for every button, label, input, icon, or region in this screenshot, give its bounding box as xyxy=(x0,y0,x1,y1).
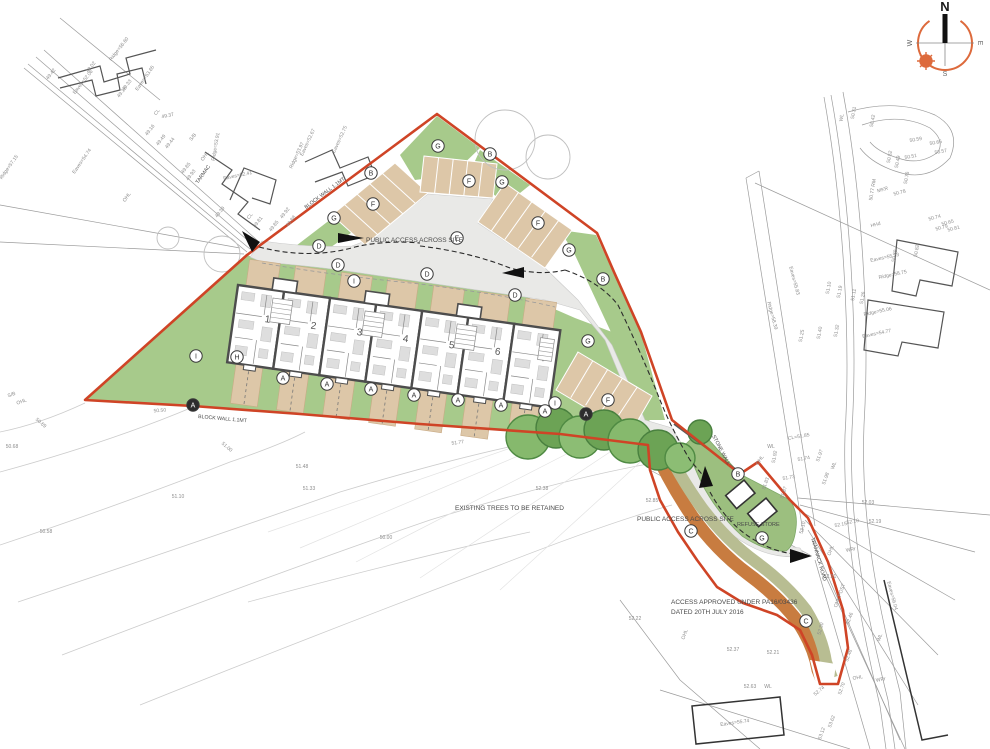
marker-A: A xyxy=(277,372,289,384)
survey-label: Eaves=54.74 xyxy=(71,148,93,176)
stair-core xyxy=(538,338,555,362)
survey-label: 50.42 xyxy=(869,114,877,128)
marker-A: A xyxy=(495,399,507,411)
front-step xyxy=(474,397,487,404)
survey-label: HHd xyxy=(870,221,881,229)
survey-label: WRr xyxy=(845,546,856,554)
survey-label: 51.98 xyxy=(821,472,831,486)
survey-label: 50.57 xyxy=(934,148,948,156)
annotation-public-access-top: PUBLIC ACCESS ACROSS SITE xyxy=(366,237,463,244)
survey-label: 51.92 xyxy=(771,450,779,464)
marker-letter: C xyxy=(688,529,693,536)
tree-shadow-lines xyxy=(268,440,648,590)
furniture xyxy=(442,374,452,384)
marker-letter: D xyxy=(512,293,517,300)
survey-label: 50.74 xyxy=(928,213,942,222)
furniture xyxy=(284,326,300,336)
survey-label: 53.12 xyxy=(817,727,827,741)
furniture xyxy=(353,340,365,355)
furniture xyxy=(307,333,319,348)
front-step xyxy=(243,365,256,372)
survey-label: 50.51 xyxy=(904,153,918,161)
survey-label: 51.77 xyxy=(451,439,464,447)
survey-label: 51.48 xyxy=(296,464,309,470)
furniture xyxy=(537,366,549,381)
marker-D: D xyxy=(332,259,344,271)
marker-letter: A xyxy=(412,393,417,400)
front-step xyxy=(520,403,533,410)
survey-label: Eaves=55.83 xyxy=(787,266,800,296)
survey-label: 50.66 xyxy=(929,139,943,147)
survey-label: 51.25 xyxy=(798,329,806,343)
marker-letter: I xyxy=(195,354,197,361)
marker-C: C xyxy=(685,525,697,537)
marker-letter: G xyxy=(759,536,764,543)
survey-label: 51.10 xyxy=(172,494,185,500)
marker-letter: G xyxy=(435,144,440,151)
marker-B: B xyxy=(732,468,744,480)
furniture xyxy=(258,349,268,359)
furniture xyxy=(465,378,478,389)
marker-letter: A xyxy=(499,403,504,410)
survey-label: 50.49 xyxy=(894,155,902,169)
marker-B: B xyxy=(484,148,496,160)
furniture xyxy=(419,371,432,382)
survey-label: 50.82 xyxy=(913,244,921,258)
survey-label: OHL xyxy=(122,191,133,203)
survey-label: OHL xyxy=(826,545,835,557)
survey-label: OHL xyxy=(200,150,211,162)
annotation-block-wall-nw: BLOCK WALL 1.1MT xyxy=(304,176,347,211)
marker-letter: I xyxy=(353,279,355,286)
marker-letter: D xyxy=(424,272,429,279)
furniture xyxy=(304,355,314,365)
annotation-access-approved-2: DATED 20TH JULY 2016 xyxy=(671,609,744,616)
marker-A: A xyxy=(321,378,333,390)
furniture xyxy=(396,368,406,378)
rear-porch xyxy=(456,304,481,319)
annotation-access-approved-1: ACCESS APPROVED UNDER PA16/03436 xyxy=(671,599,798,606)
furniture xyxy=(491,359,503,374)
marker-B: B xyxy=(365,167,377,179)
marker-letter: F xyxy=(536,221,540,228)
survey-label: Eaves=54.77 xyxy=(862,328,892,340)
survey-label: 49.37 xyxy=(161,112,175,121)
survey-label: OHL xyxy=(852,674,863,682)
annotation-existing-trees: EXISTING TREES TO BE RETAINED xyxy=(455,505,564,512)
furniture xyxy=(350,362,360,372)
survey-label: 50.81 xyxy=(947,224,961,233)
survey-label: 49.81 xyxy=(252,215,265,229)
survey-label: 50.68 xyxy=(6,444,19,450)
compass-east-label: E xyxy=(976,41,983,46)
marker-I: I xyxy=(348,275,360,287)
survey-label: Eaves=52.41 xyxy=(223,170,253,182)
marker-H: H xyxy=(231,351,243,363)
furniture xyxy=(511,384,524,395)
survey-label: 50.78 xyxy=(893,188,907,197)
survey-label: 51.11 xyxy=(850,288,858,301)
survey-label: 52.03 xyxy=(862,500,875,506)
marker-G: G xyxy=(582,335,594,347)
furniture xyxy=(422,345,438,355)
survey-label: 51.19 xyxy=(836,285,844,299)
marker-A: A xyxy=(408,389,420,401)
survey-label: 51.40 xyxy=(816,326,824,340)
survey-label: 53.10 xyxy=(799,521,808,535)
survey-label: 52.63 xyxy=(744,684,757,690)
survey-label: WL xyxy=(767,444,775,450)
rear-porch xyxy=(364,291,389,306)
survey-label: 52.38 xyxy=(536,486,549,492)
survey-label: 50.76 xyxy=(903,171,911,185)
site-plan-drawing: 1234567 xyxy=(0,0,990,749)
furniture xyxy=(488,381,498,391)
marker-letter: A xyxy=(325,382,330,389)
survey-label: S/B xyxy=(188,132,198,143)
marker-letter: D xyxy=(335,263,340,270)
marker-letter: G xyxy=(566,248,571,255)
marker-I: I xyxy=(190,350,202,362)
marker-A: A xyxy=(187,399,199,411)
marker-F: F xyxy=(532,217,544,229)
survey-label: 51.26 xyxy=(859,291,867,305)
compass-needle xyxy=(943,14,948,43)
annotation-trannack-road: TRANNACK ROAD xyxy=(809,537,827,582)
marker-G: G xyxy=(328,212,340,224)
marker-A: A xyxy=(539,405,551,417)
survey-label: WL xyxy=(838,113,845,122)
stair-core xyxy=(362,311,385,338)
marker-letter: F xyxy=(606,398,610,405)
survey-label: 51.33 xyxy=(303,486,316,492)
marker-letter: A xyxy=(456,398,461,405)
marker-letter: B xyxy=(736,472,741,479)
site-plan-page: 1234567 xyxy=(0,0,990,749)
marker-B: B xyxy=(597,273,609,285)
marker-letter: B xyxy=(369,171,374,178)
compass-south-label: S xyxy=(943,71,948,78)
survey-label: WL xyxy=(876,633,884,642)
rear-porch xyxy=(272,278,297,293)
furniture xyxy=(399,346,411,361)
marker-letter: A xyxy=(369,387,374,394)
survey-label: OHL xyxy=(755,454,766,466)
survey-label: 52.46 xyxy=(845,612,855,626)
furniture xyxy=(445,353,457,368)
marker-G: G xyxy=(563,244,575,256)
survey-label: 50.00 xyxy=(380,535,393,541)
marker-A: A xyxy=(580,408,592,420)
survey-label: 50.52 xyxy=(886,150,894,164)
survey-label: 51.10 xyxy=(825,281,833,295)
marker-letter: G xyxy=(331,216,336,223)
marker-I: I xyxy=(549,397,561,409)
survey-label: 52.74 xyxy=(813,685,827,698)
furniture xyxy=(372,365,385,376)
survey-label: 51.74 xyxy=(797,455,811,463)
survey-label: WL xyxy=(764,684,772,690)
stair-core xyxy=(454,324,477,351)
marker-G: G xyxy=(756,532,768,544)
furniture xyxy=(330,332,346,342)
survey-label: 50.59 xyxy=(909,136,923,144)
compass-west-label: W xyxy=(907,39,914,46)
survey-label: 50.69 xyxy=(34,417,48,430)
survey-label: 52.15 xyxy=(834,521,848,529)
marker-F: F xyxy=(463,175,475,187)
marker-letter: A xyxy=(584,412,589,419)
marker-G: G xyxy=(432,140,444,152)
survey-label: 49.88 xyxy=(285,214,298,228)
survey-label: Ridge=53.91 xyxy=(211,132,222,161)
compass-north-label: N xyxy=(940,0,949,14)
marker-letter: A xyxy=(191,403,196,410)
survey-label: 52.22 xyxy=(629,616,642,622)
front-step xyxy=(381,384,394,391)
survey-label: MKR xyxy=(877,186,890,195)
survey-label: 50.58 xyxy=(40,529,53,535)
marker-letter: B xyxy=(488,152,493,159)
survey-label: WRr xyxy=(875,676,886,684)
front-step xyxy=(289,371,302,378)
furniture xyxy=(333,305,347,315)
marker-C: C xyxy=(800,615,812,627)
marker-A: A xyxy=(365,383,377,395)
annotation-refuse-store: REFUSE STORE xyxy=(737,522,780,528)
survey-label: 53.62 xyxy=(827,715,837,729)
survey-label: 51.83 xyxy=(761,477,771,491)
marker-letter: F xyxy=(467,179,471,186)
annotation-public-access-bottom: PUBLIC ACCESS ACROSS SITE xyxy=(637,516,734,523)
furniture xyxy=(468,352,484,362)
furniture xyxy=(376,339,392,349)
survey-label: Eaves=55.74 xyxy=(720,718,750,728)
marker-letter: B xyxy=(601,277,606,284)
marker-letter: G xyxy=(499,180,504,187)
marker-letter: A xyxy=(281,376,286,383)
marker-F: F xyxy=(602,394,614,406)
furniture xyxy=(260,327,272,342)
marker-letter: D xyxy=(316,244,321,251)
annotation-block-wall-south: BLOCK WALL 1.1MT xyxy=(198,414,248,424)
marker-letter: C xyxy=(803,619,808,626)
survey-label: 51.97 xyxy=(815,449,825,463)
furniture xyxy=(517,330,531,340)
survey-label: 49.16 xyxy=(144,123,157,137)
marker-D: D xyxy=(509,289,521,301)
marker-letter: F xyxy=(371,202,375,209)
survey-label: 52.10 xyxy=(846,518,860,526)
survey-label: OHL xyxy=(16,397,28,406)
marker-A: A xyxy=(452,394,464,406)
marker-letter: H xyxy=(234,355,239,362)
furniture xyxy=(534,387,544,397)
survey-label: 52.21 xyxy=(767,650,780,656)
survey-label: CL=51.85 xyxy=(788,432,811,442)
survey-label: Eaves=52.75 xyxy=(331,125,349,154)
marker-D: D xyxy=(421,268,433,280)
survey-label: 52.48 xyxy=(844,649,854,663)
marker-letter: A xyxy=(543,409,548,416)
marker-F: F xyxy=(367,198,379,210)
survey-label: Ridge=58.39 xyxy=(765,301,778,330)
survey-label: 52.37 xyxy=(727,647,740,653)
survey-label: 49.39 xyxy=(214,205,227,219)
compass: N S W E xyxy=(907,0,983,78)
front-step xyxy=(427,390,440,397)
furniture xyxy=(514,358,530,368)
survey-label: 51.73 xyxy=(782,474,796,482)
marker-D: D xyxy=(313,240,325,252)
survey-label: 52.19 xyxy=(869,519,882,525)
survey-label: S/B xyxy=(7,391,17,400)
furniture xyxy=(241,292,255,302)
survey-label: 52.85 xyxy=(646,498,659,504)
survey-label: 50.50 xyxy=(153,407,166,414)
survey-label: 51.00 xyxy=(220,441,234,454)
survey-label: Ridge=56.60 xyxy=(108,36,130,62)
stair-core xyxy=(270,298,293,325)
marker-letter: I xyxy=(554,401,556,408)
marker-letter: G xyxy=(585,339,590,346)
survey-label: Ridge=57.15 xyxy=(0,154,20,181)
marker-G: G xyxy=(496,176,508,188)
furniture xyxy=(425,318,439,328)
survey-label: OHL xyxy=(680,629,689,641)
furniture xyxy=(326,358,339,369)
survey-label: CL xyxy=(246,212,255,221)
survey-label: WL xyxy=(830,461,838,470)
furniture xyxy=(238,320,254,330)
survey-label: 51.32 xyxy=(833,324,841,338)
furniture xyxy=(280,352,293,363)
survey-label: 50.31 xyxy=(850,106,858,120)
annotation-tarmac: TARMAC xyxy=(195,164,212,185)
front-step xyxy=(335,378,348,385)
